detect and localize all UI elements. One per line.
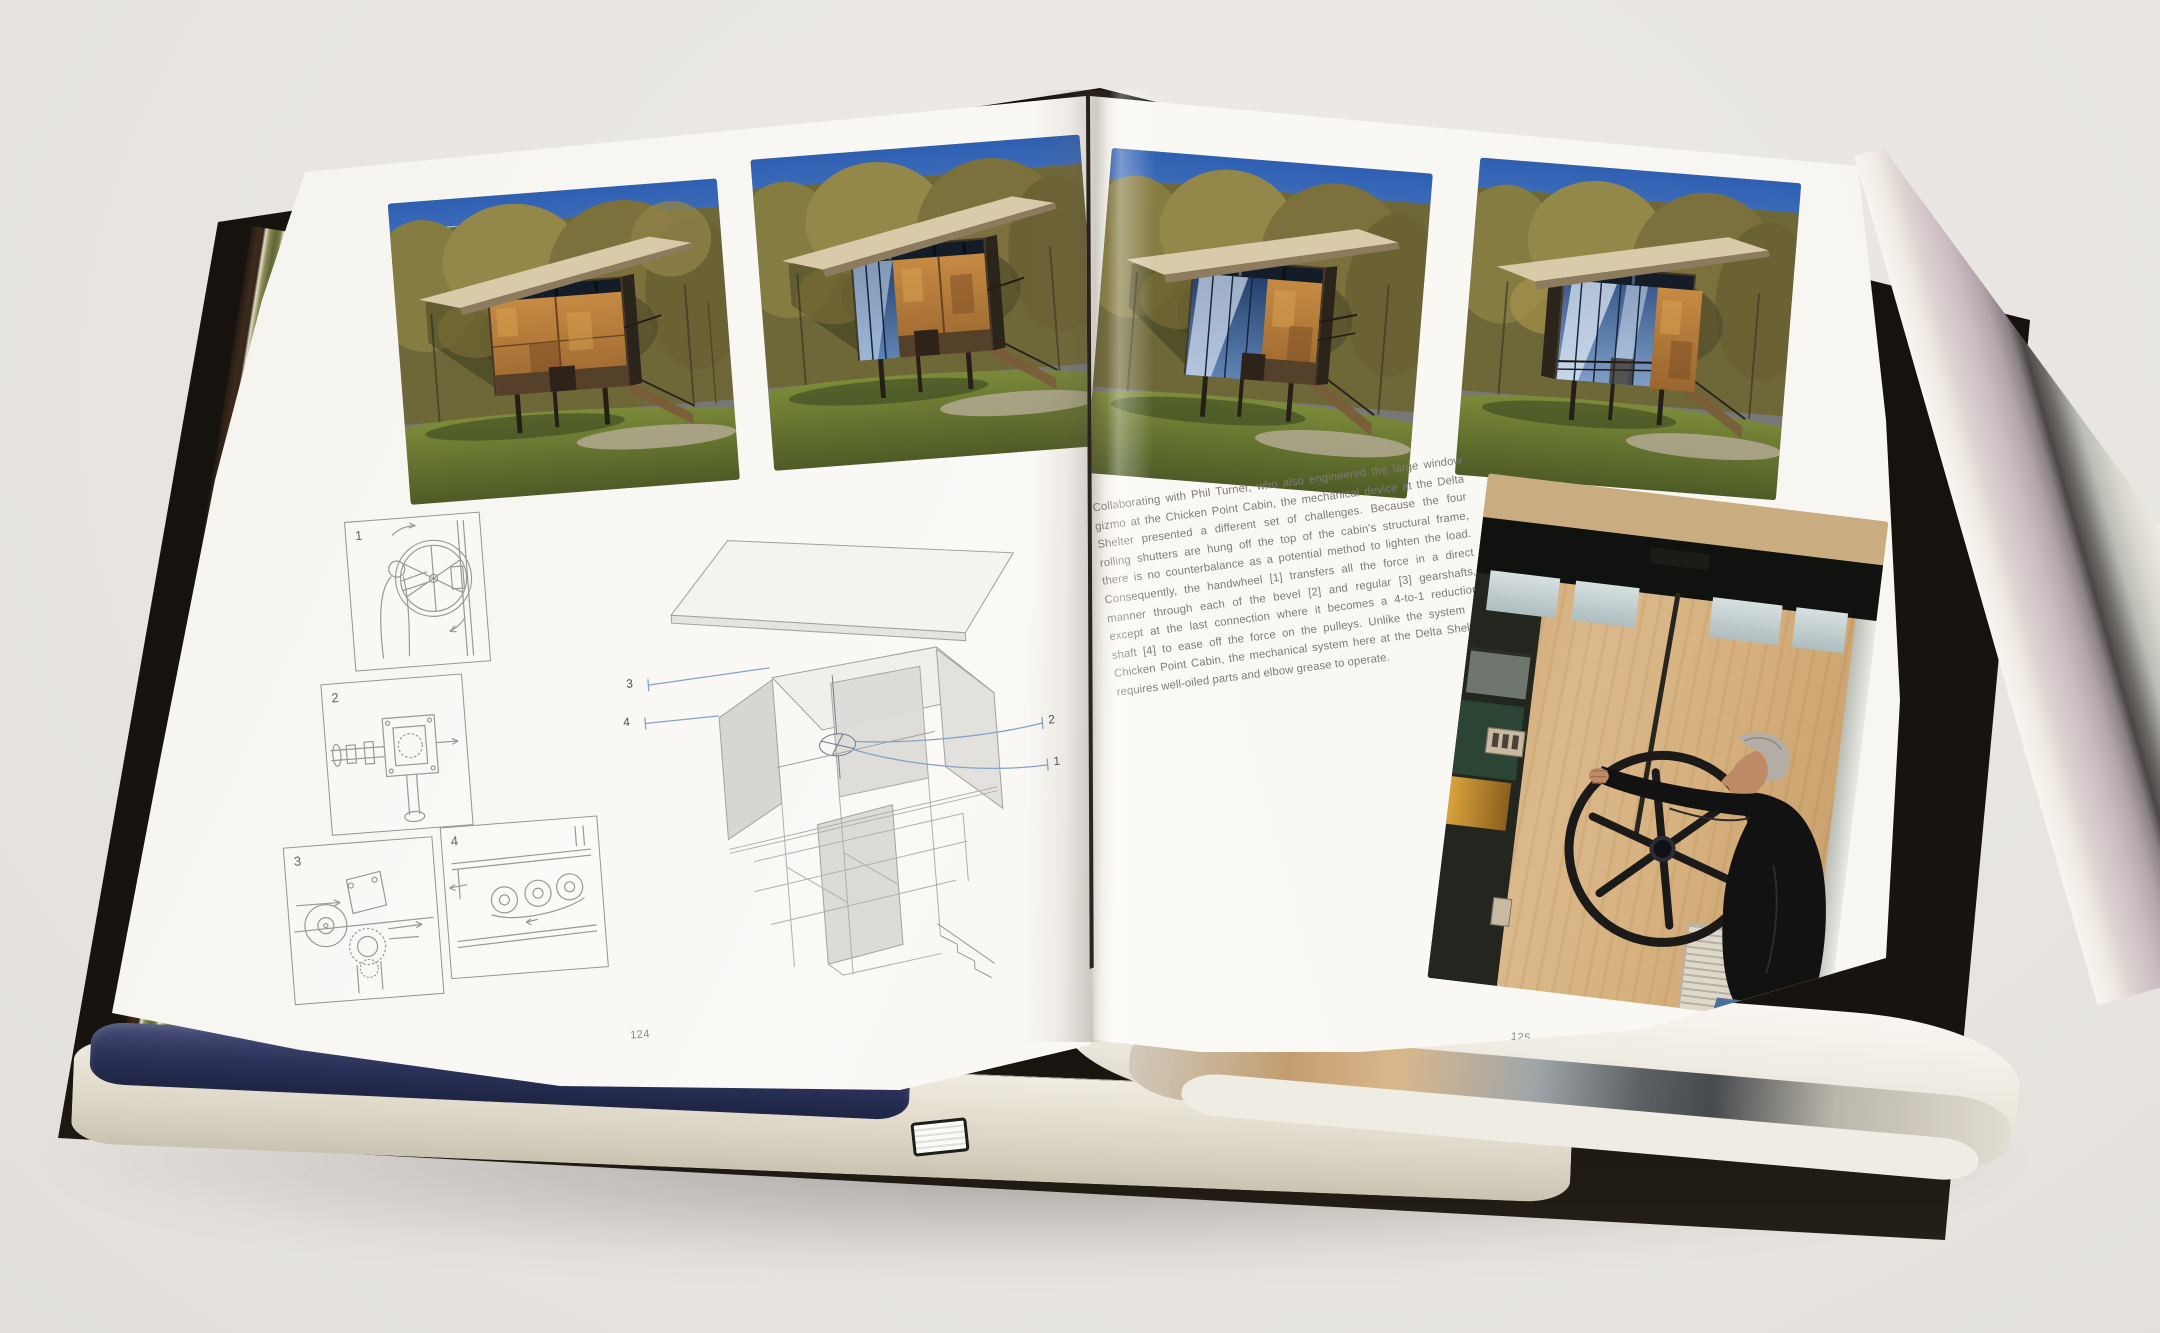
shelf-amber-light (1446, 776, 1511, 831)
diagram-3-reduction-gear: 3 (283, 836, 445, 1005)
axon-label-4: 4 (623, 715, 631, 729)
diagram-2-illustration (321, 675, 472, 835)
photo-cabin-shutters-closed (388, 178, 740, 504)
light-switch-plate (1485, 727, 1526, 757)
clerestory-window (1486, 570, 1560, 618)
axon-label-3: 3 (626, 676, 634, 690)
clerestory-window (1792, 607, 1848, 653)
diagram-4-pulleys: 4 (440, 815, 609, 979)
man-figure-illustration (1556, 702, 1863, 1026)
diagram-1-illustration (345, 513, 490, 671)
diagram-2-number: 2 (331, 690, 339, 706)
diagram-4-illustration (441, 817, 608, 979)
shelf-equipment (1466, 647, 1531, 699)
photo-man-turning-handwheel (1427, 473, 1888, 1026)
diagram-3-illustration (284, 837, 444, 1004)
cabin-photo-1-illustration (388, 178, 740, 504)
diagram-1-number: 1 (354, 528, 362, 544)
book-photograph: 1 2 (0, 0, 2160, 1333)
diagram-2-bevel-gear: 2 (320, 673, 473, 835)
clerestory-window (1571, 581, 1639, 628)
spine-headband (910, 1117, 969, 1157)
diagram-1-handwheel: 1 (344, 512, 491, 672)
gutter-shadow (1024, 89, 1156, 1042)
clerestory-window (1708, 597, 1782, 645)
diagram-3-number: 3 (293, 853, 301, 869)
cabin-photo-4-illustration (1455, 158, 1801, 501)
power-outlet (1490, 897, 1512, 927)
diagram-4-number: 4 (450, 833, 458, 849)
photo-cabin-shutters-open (1455, 158, 1801, 501)
page-number-left: 124 (630, 1028, 651, 1041)
